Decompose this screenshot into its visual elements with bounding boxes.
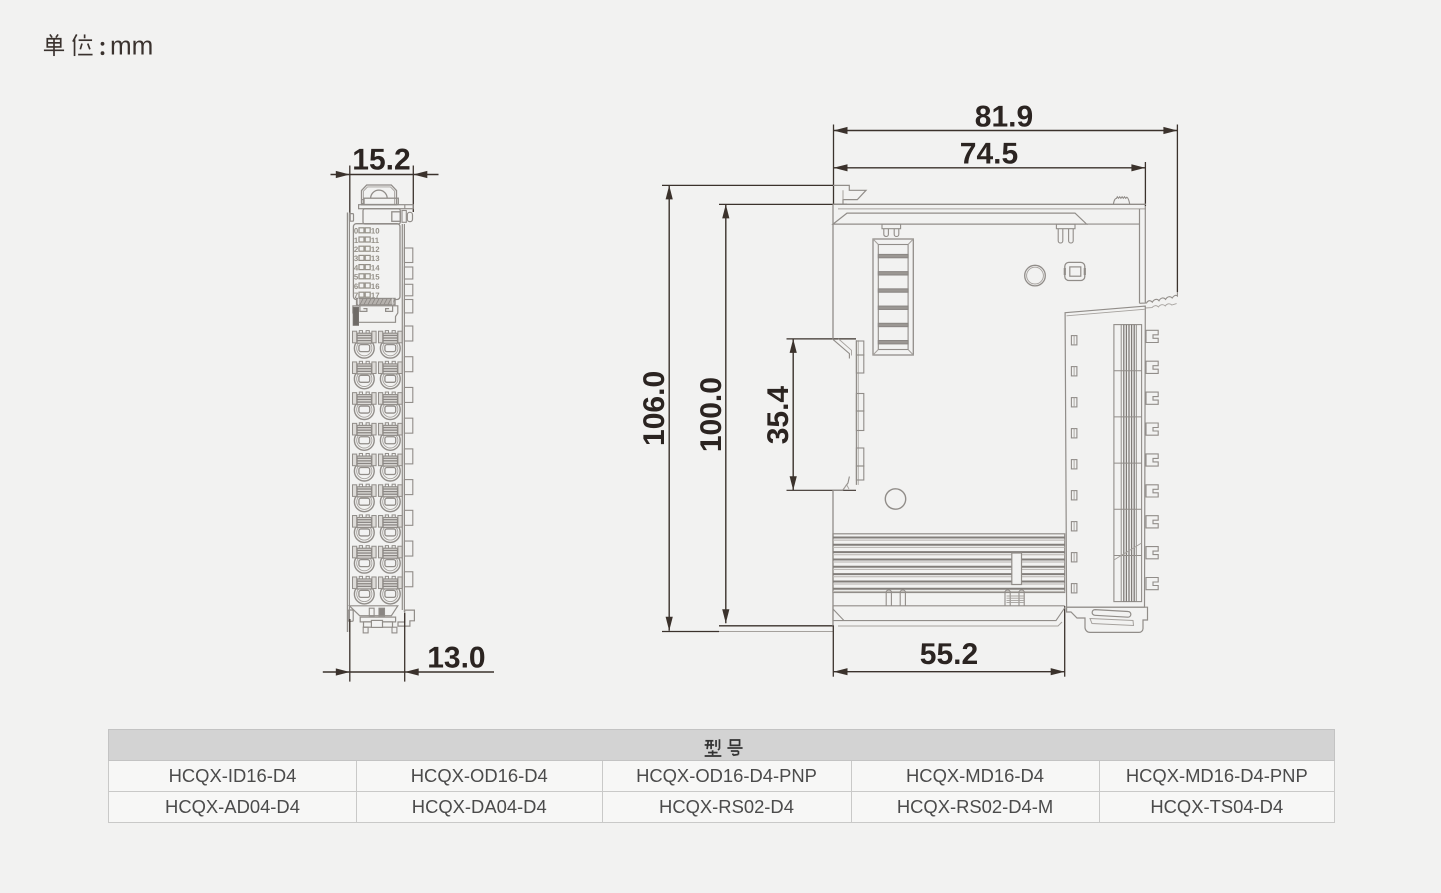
svg-text:35.4: 35.4 — [762, 386, 795, 445]
svg-text:3: 3 — [354, 254, 359, 263]
svg-text:12: 12 — [371, 245, 380, 254]
svg-text:55.2: 55.2 — [920, 638, 978, 671]
svg-text:mm: mm — [110, 31, 153, 61]
svg-text:2: 2 — [354, 245, 359, 254]
svg-text:6: 6 — [354, 282, 359, 291]
svg-text:4: 4 — [354, 263, 359, 272]
svg-text:11: 11 — [371, 236, 380, 245]
svg-text:5: 5 — [354, 273, 359, 282]
svg-text:1: 1 — [354, 236, 359, 245]
svg-text:0: 0 — [354, 227, 359, 236]
svg-text:106.0: 106.0 — [638, 371, 671, 446]
svg-text:15.2: 15.2 — [352, 144, 410, 177]
svg-text:10: 10 — [371, 227, 380, 236]
svg-text:13.0: 13.0 — [427, 642, 485, 675]
svg-text:74.5: 74.5 — [960, 137, 1018, 170]
svg-text:15: 15 — [371, 273, 380, 282]
svg-text:16: 16 — [371, 282, 380, 291]
svg-text:13: 13 — [371, 254, 380, 263]
svg-text:100.0: 100.0 — [695, 377, 728, 452]
svg-text:81.9: 81.9 — [975, 100, 1033, 133]
svg-text:14: 14 — [371, 263, 380, 272]
